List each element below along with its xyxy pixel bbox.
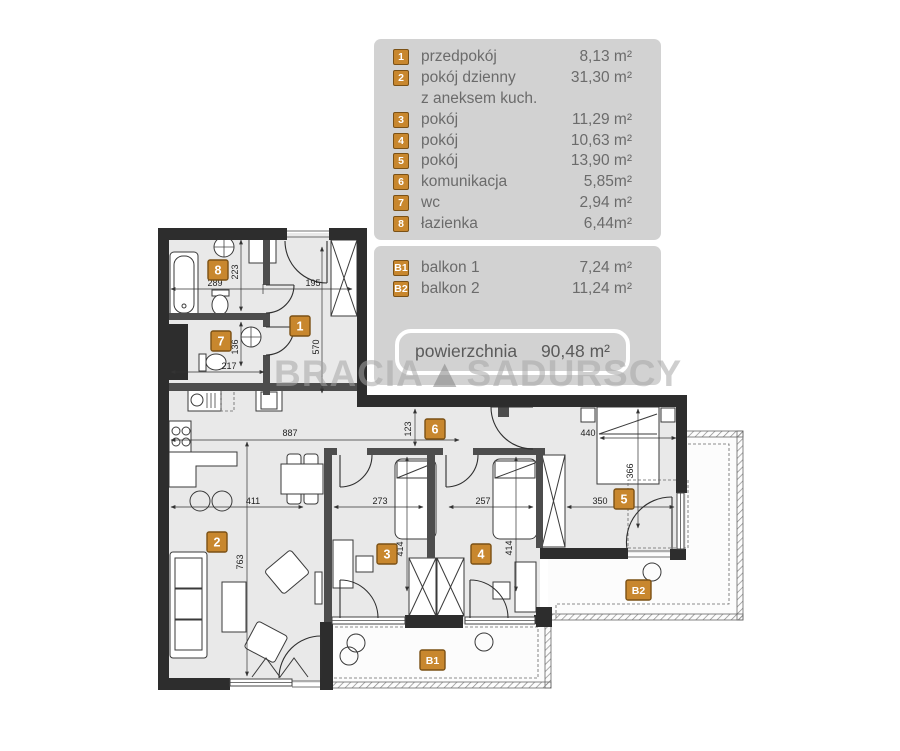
dimension-label: 350	[592, 496, 607, 506]
nightstand-icon	[661, 408, 675, 422]
dimension-label: 273	[372, 496, 387, 506]
legend-row: B1 balkon 1 7,24 m²	[393, 258, 632, 279]
dimension-label: 440	[580, 428, 595, 438]
legend-badge-6: 6	[393, 174, 409, 190]
room-area: 11,29 m²	[572, 111, 632, 129]
room-area: 6,44m²	[584, 215, 632, 233]
legend-badge-b2: B2	[393, 281, 409, 297]
room-badge-b2: B2	[626, 580, 651, 600]
tv-icon	[315, 572, 322, 604]
sofa-icon	[170, 552, 207, 658]
legend-row-continuation: z aneksem kuch.	[393, 89, 632, 110]
legend-row: 1 przedpokój 8,13 m²	[393, 47, 632, 68]
legend-badge-b1: B1	[393, 260, 409, 276]
dimension-label: 366	[625, 463, 635, 478]
balcony-area: 7,24 m²	[579, 259, 632, 277]
svg-text:8: 8	[215, 264, 222, 278]
legend-badge-2: 2	[393, 70, 409, 86]
svg-text:4: 4	[478, 548, 485, 562]
legend-balconies-panel: B1 balkon 1 7,24 m² B2 balkon 2 11,24 m²…	[374, 246, 661, 385]
room-area: 13,90 m²	[571, 152, 632, 170]
room-badge-8: 8	[208, 260, 228, 280]
dining-table-icon	[281, 464, 323, 494]
legend-badge-3: 3	[393, 112, 409, 128]
svg-text:7: 7	[218, 335, 225, 349]
svg-text:3: 3	[384, 548, 391, 562]
legend-badge-1: 1	[393, 49, 409, 65]
nightstand-icon	[581, 408, 595, 422]
room-area: 2,94 m²	[579, 194, 632, 212]
legend-row: 6 komunikacja 5,85m²	[393, 172, 632, 193]
legend-row: 3 pokój 11,29 m²	[393, 109, 632, 130]
room-badge-1: 1	[290, 316, 310, 336]
balcony-area: 11,24 m²	[572, 280, 632, 298]
svg-text:6: 6	[432, 423, 439, 437]
hall-wardrobe	[331, 240, 357, 316]
balcony-name: balkon 1	[421, 259, 579, 277]
room-name: wc	[421, 194, 579, 212]
dimension-label: 217	[221, 361, 236, 371]
chair-icon	[356, 556, 373, 572]
coffee-table-icon	[222, 582, 246, 632]
dimension-label: 414	[504, 540, 514, 555]
svg-text:2: 2	[214, 536, 221, 550]
shaft	[169, 324, 188, 380]
room-name: pokój	[421, 111, 572, 129]
legend-row: 7 wc 2,94 m²	[393, 193, 632, 214]
svg-text:5: 5	[621, 493, 628, 507]
legend-badge-8: 8	[393, 216, 409, 232]
dimension-label: 411	[246, 496, 260, 506]
room-badge-3: 3	[377, 544, 397, 564]
legend-row: 2 pokój dzienny 31,30 m²	[393, 68, 632, 89]
room-name: komunikacja	[421, 173, 584, 191]
total-area-label: powierzchnia	[415, 341, 541, 362]
legend-badge-spacer	[393, 91, 409, 107]
room-badge-b1: B1	[420, 650, 445, 670]
room-name: pokój	[421, 132, 571, 150]
balcony-name: balkon 2	[421, 280, 572, 298]
legend-row: 8 łazienka 6,44m²	[393, 213, 632, 234]
dimension-label: 223	[230, 264, 240, 279]
room-area: 8,13 m²	[579, 48, 632, 66]
room-badge-7: 7	[211, 331, 231, 351]
room-name: łazienka	[421, 215, 584, 233]
toilet-icon	[199, 354, 206, 371]
legend-badge-5: 5	[393, 153, 409, 169]
kitchen-sink-icon	[188, 390, 221, 411]
dimension-label: 195	[305, 278, 320, 288]
total-area-box: powierzchnia 90,48 m²	[395, 329, 630, 375]
dimension-label: 887	[282, 428, 297, 438]
svg-text:B1: B1	[426, 655, 440, 667]
room-name: pokój	[421, 152, 571, 170]
legend-rooms-panel: 1 przedpokój 8,13 m² 2 pokój dzienny 31,…	[374, 39, 661, 240]
room-area: 10,63 m²	[571, 132, 632, 150]
legend-badge-7: 7	[393, 195, 409, 211]
dimension-label: 257	[475, 496, 490, 506]
total-area-value: 90,48 m²	[541, 341, 610, 362]
legend-row: B2 balkon 2 11,24 m²	[393, 279, 632, 300]
room-badge-2: 2	[207, 532, 227, 552]
room-name: pokój dzienny	[421, 69, 571, 87]
dimension-label: 763	[235, 554, 245, 569]
washing-machine-icon	[249, 238, 276, 263]
room-name: przedpokój	[421, 48, 579, 66]
svg-text:B2: B2	[632, 585, 646, 597]
legend-row: 5 pokój 13,90 m²	[393, 151, 632, 172]
room-badge-5: 5	[614, 489, 634, 509]
svg-text:1: 1	[297, 320, 304, 334]
room-name: z aneksem kuch.	[421, 90, 632, 108]
legend-row: 4 pokój 10,63 m²	[393, 130, 632, 151]
dimension-label: 570	[311, 339, 321, 354]
legend-badge-4: 4	[393, 133, 409, 149]
room-badge-4: 4	[471, 544, 491, 564]
desk-icon	[515, 562, 536, 612]
room-badge-6: 6	[425, 419, 445, 439]
room-area: 31,30 m²	[571, 69, 632, 87]
room-area: 5,85m²	[584, 173, 632, 191]
dimension-label: 123	[403, 421, 413, 436]
